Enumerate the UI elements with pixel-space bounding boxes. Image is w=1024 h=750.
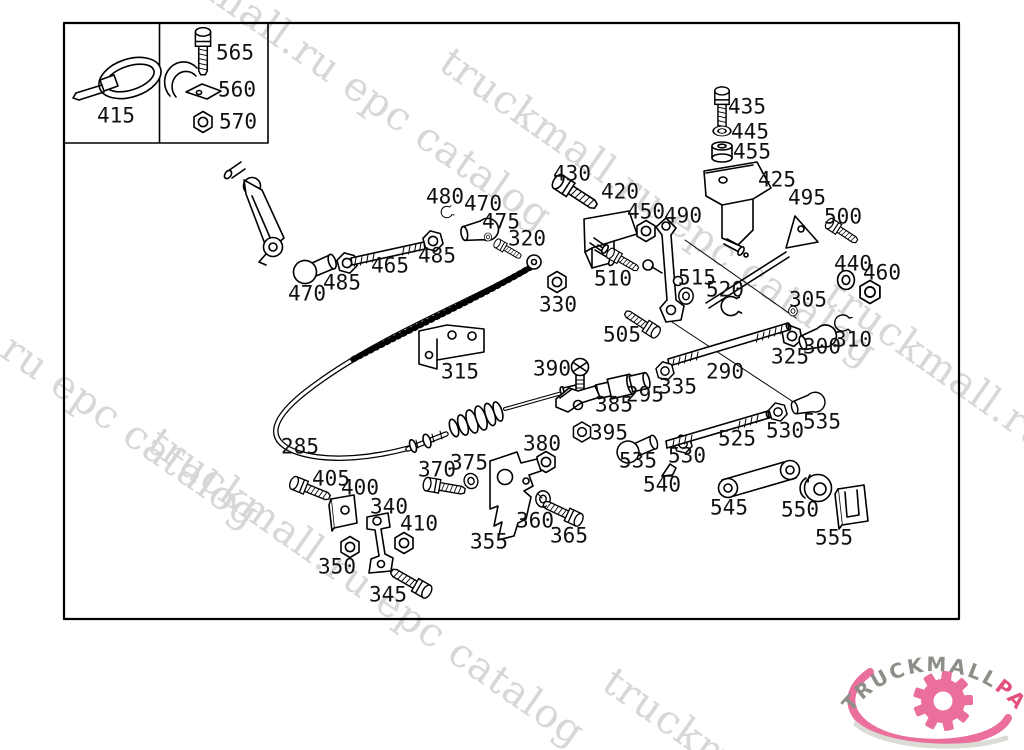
part-435-bolt: [715, 87, 729, 132]
part-label-335: 335: [659, 374, 697, 398]
watermark-text: truckmall.ru epc catalog: [816, 271, 1024, 608]
part-label-365: 365: [550, 523, 588, 547]
part-label-510: 510: [594, 266, 632, 290]
part-label-360: 360: [516, 508, 554, 532]
part-label-535: 535: [803, 409, 841, 433]
part-560-clamp: [165, 62, 221, 99]
part-label-495: 495: [788, 185, 826, 209]
part-label-560: 560: [218, 77, 256, 101]
part-415-cable-tie: [73, 50, 166, 106]
part-label-500: 500: [824, 204, 862, 228]
part-label-565: 565: [216, 40, 254, 64]
part-label-480: 480: [426, 184, 464, 208]
part-label-435: 435: [728, 94, 766, 118]
part-label-430: 430: [553, 161, 591, 185]
part-label-540: 540: [643, 472, 681, 496]
part-445-washer: [713, 126, 731, 136]
part-label-385: 385: [595, 392, 633, 416]
part-label-380: 380: [523, 431, 561, 455]
part-label-450: 450: [627, 199, 665, 223]
part-label-555: 555: [815, 525, 853, 549]
part-label-530: 530: [668, 443, 706, 467]
part-label-485: 485: [323, 270, 361, 294]
part-545-link: [719, 461, 800, 498]
part-label-455: 455: [733, 139, 771, 163]
part-410-nut: [395, 533, 413, 554]
part-label-550: 550: [781, 497, 819, 521]
part-label-310: 310: [834, 327, 872, 351]
part-label-570: 570: [219, 109, 257, 133]
part-395-nut: [573, 422, 590, 442]
catalog-page: truckmall.ru epc catalogtruckmall.ru epc…: [0, 0, 1024, 750]
part-label-285: 285: [281, 434, 319, 458]
part-label-545: 545: [710, 495, 748, 519]
part-label-315: 315: [441, 359, 479, 383]
part-label-350: 350: [318, 554, 356, 578]
part-label-390: 390: [533, 356, 571, 380]
part-label-470: 470: [288, 281, 326, 305]
part-label-395: 395: [590, 420, 628, 444]
part-330-nut: [548, 272, 566, 293]
part-label-320: 320: [508, 226, 546, 250]
part-label-485: 485: [418, 243, 456, 267]
parts-diagram: truckmall.ru epc catalogtruckmall.ru epc…: [0, 0, 1024, 750]
part-label-505: 505: [603, 322, 641, 346]
part-label-465: 465: [371, 253, 409, 277]
part-label-525: 525: [718, 426, 756, 450]
part-label-330: 330: [539, 292, 577, 316]
part-570-nut: [194, 112, 212, 133]
part-555-slide: [835, 485, 868, 529]
part-475-ring: [484, 233, 491, 241]
part-label-290: 290: [706, 359, 744, 383]
part-400-plate: [329, 495, 357, 531]
part-label-520: 520: [706, 277, 744, 301]
part-relay-lever: [223, 162, 284, 265]
part-label-460: 460: [863, 260, 901, 284]
part-455-grommet: [712, 142, 732, 162]
part-label-355: 355: [470, 529, 508, 553]
part-label-410: 410: [400, 511, 438, 535]
watermark-layer: truckmall.ru epc catalogtruckmall.ru epc…: [0, 0, 1024, 750]
part-label-325: 325: [771, 344, 809, 368]
part-label-345: 345: [369, 582, 407, 606]
part-label-415: 415: [97, 103, 135, 127]
part-label-530: 530: [766, 418, 804, 442]
part-340-bracket: [367, 513, 393, 573]
part-label-305: 305: [789, 287, 827, 311]
part-label-535: 535: [619, 448, 657, 472]
part-450-nut: [637, 221, 655, 242]
part-label-375: 375: [450, 450, 488, 474]
part-label-490: 490: [664, 203, 702, 227]
